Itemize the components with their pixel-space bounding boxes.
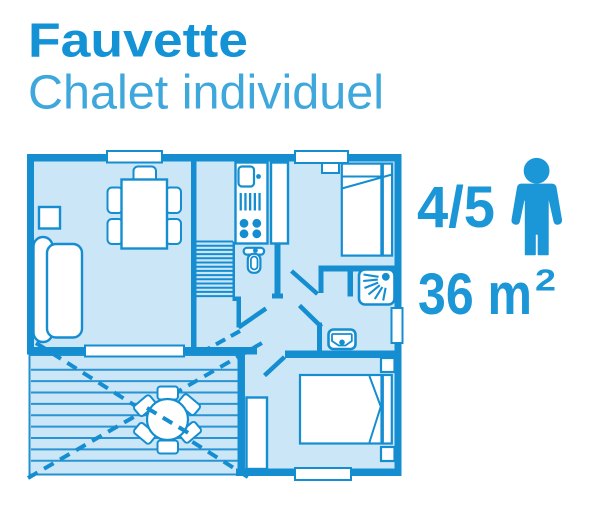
svg-text:Chalet individuel: Chalet individuel [28,67,384,120]
svg-text:Fauvette: Fauvette [28,15,248,68]
svg-text:2: 2 [535,263,556,298]
svg-text:4/5: 4/5 [417,175,495,240]
svg-text:36 m: 36 m [418,262,532,327]
